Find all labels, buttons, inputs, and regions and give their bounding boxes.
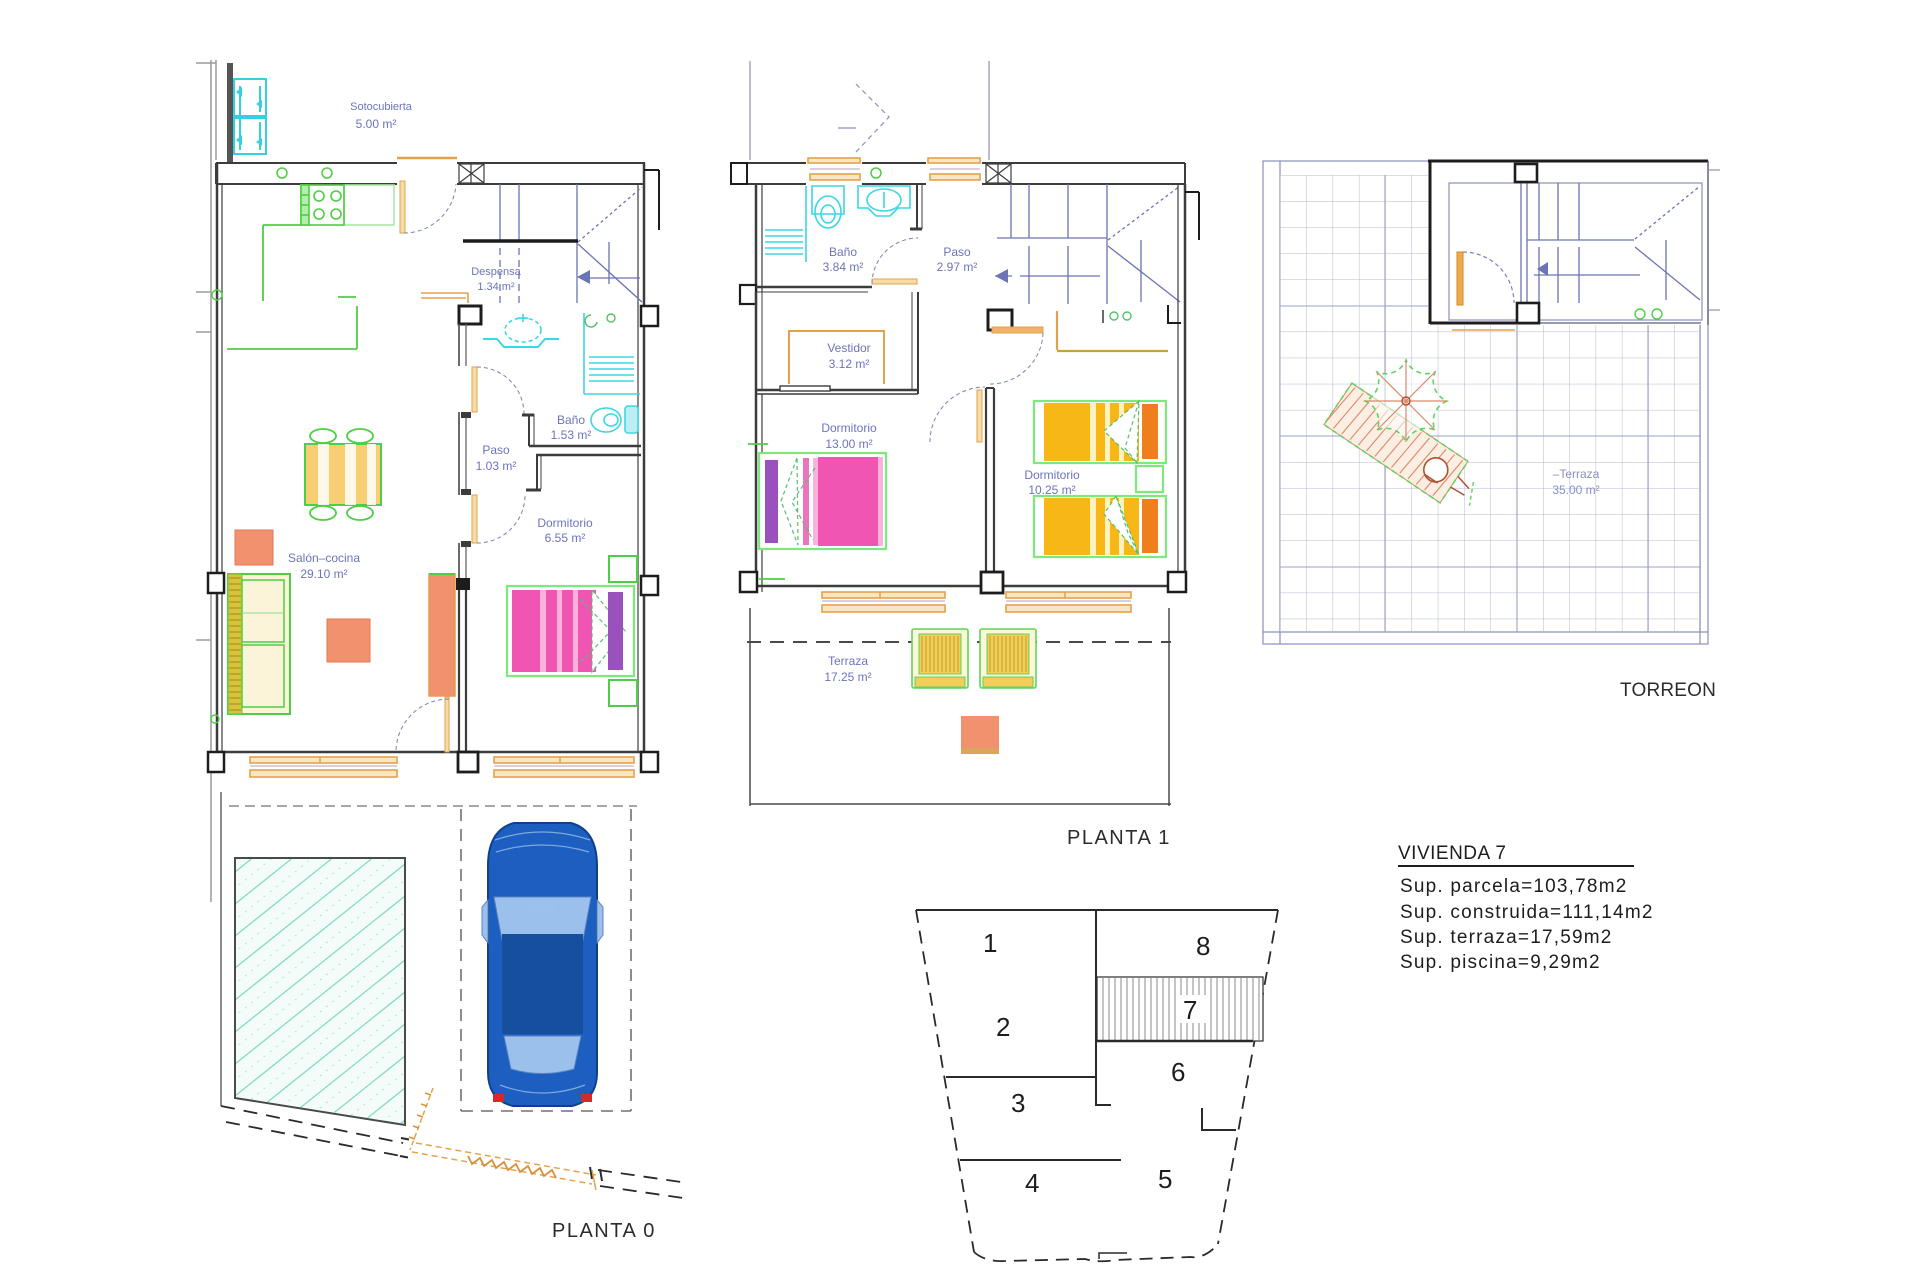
svg-text:PLANTA 1: PLANTA 1 bbox=[1067, 827, 1171, 849]
svg-text:Sup. terraza=17,59m2: Sup. terraza=17,59m2 bbox=[1400, 927, 1613, 948]
svg-text:13.00 m²: 13.00 m² bbox=[825, 437, 872, 451]
svg-text:Sup. construida=111,14m2: Sup. construida=111,14m2 bbox=[1400, 902, 1654, 923]
svg-text:VIVIENDA 7: VIVIENDA 7 bbox=[1398, 843, 1507, 864]
svg-text:3: 3 bbox=[1011, 1088, 1025, 1118]
svg-text:Paso: Paso bbox=[943, 245, 971, 259]
svg-text:2: 2 bbox=[996, 1012, 1010, 1042]
svg-text:2.97 m²: 2.97 m² bbox=[937, 260, 978, 274]
svg-text:35.00 m²: 35.00 m² bbox=[1552, 483, 1599, 497]
svg-text:Salón–cocina: Salón–cocina bbox=[288, 551, 360, 565]
svg-text:Dormitorio: Dormitorio bbox=[1024, 468, 1080, 482]
svg-text:5: 5 bbox=[1158, 1164, 1172, 1194]
svg-text:Vestidor: Vestidor bbox=[827, 341, 870, 355]
svg-text:Despensa: Despensa bbox=[471, 266, 521, 278]
svg-text:Sup. piscina=9,29m2: Sup. piscina=9,29m2 bbox=[1400, 952, 1601, 973]
svg-text:10.25 m²: 10.25 m² bbox=[1028, 483, 1075, 497]
svg-text:Dormitorio: Dormitorio bbox=[537, 516, 593, 530]
svg-text:PLANTA 0: PLANTA 0 bbox=[552, 1220, 656, 1242]
svg-text:17.25 m²: 17.25 m² bbox=[824, 670, 871, 684]
svg-text:29.10 m²: 29.10 m² bbox=[300, 567, 347, 581]
svg-text:3.84 m²: 3.84 m² bbox=[823, 260, 864, 274]
svg-text:4: 4 bbox=[1025, 1168, 1039, 1198]
svg-text:1.03 m²: 1.03 m² bbox=[476, 459, 517, 473]
svg-text:Baño: Baño bbox=[557, 413, 585, 427]
svg-text:6.55 m²: 6.55 m² bbox=[545, 531, 586, 545]
svg-text:3.12 m²: 3.12 m² bbox=[829, 357, 870, 371]
svg-text:Terraza: Terraza bbox=[828, 654, 868, 668]
svg-text:1.53 m²: 1.53 m² bbox=[551, 428, 592, 442]
svg-text:TORREON: TORREON bbox=[1620, 680, 1716, 701]
svg-text:–Terraza: –Terraza bbox=[1553, 467, 1600, 481]
svg-text:6: 6 bbox=[1171, 1057, 1185, 1087]
svg-text:Paso: Paso bbox=[482, 443, 510, 457]
svg-text:Dormitorio: Dormitorio bbox=[821, 421, 877, 435]
svg-text:Sotocubierta: Sotocubierta bbox=[350, 101, 413, 113]
svg-text:7: 7 bbox=[1183, 995, 1197, 1025]
svg-text:1: 1 bbox=[983, 928, 997, 958]
svg-text:Baño: Baño bbox=[829, 245, 857, 259]
svg-text:5.00 m²: 5.00 m² bbox=[356, 117, 397, 131]
svg-text:Sup. parcela=103,78m2: Sup. parcela=103,78m2 bbox=[1400, 876, 1627, 897]
svg-text:1.34 m²: 1.34 m² bbox=[477, 281, 515, 293]
svg-text:8: 8 bbox=[1196, 931, 1210, 961]
